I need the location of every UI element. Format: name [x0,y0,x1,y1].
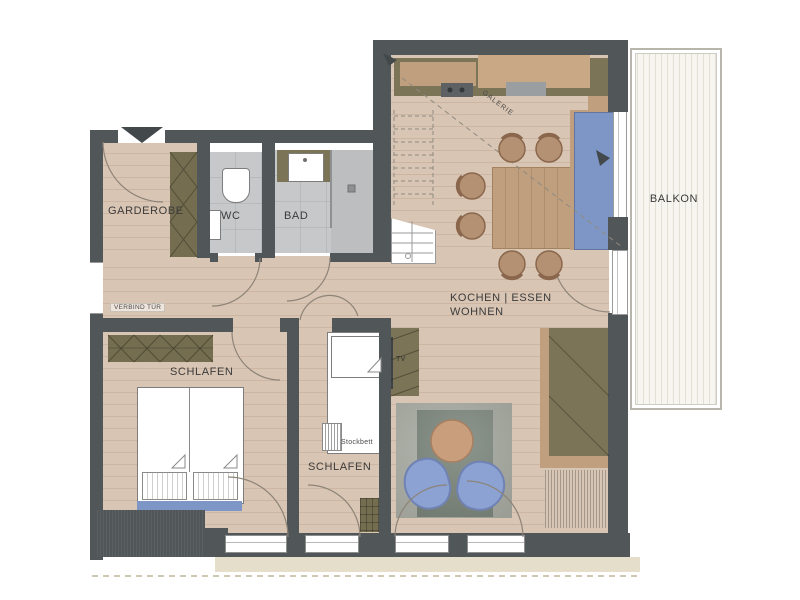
bedroom-main-label: SCHLAFEN [170,366,233,378]
balcony-deck [630,48,722,410]
dining-table [492,167,574,249]
duvet-left [142,472,187,500]
wall-right-lower [608,313,628,557]
cooktop [441,83,473,97]
bad-label: BAD [284,210,308,222]
wall-wc-bad [262,142,275,258]
wall-wc-front-left [210,253,218,262]
wall-wc-front-right [255,253,262,262]
connecting-door-label: VERBIND TÜR [110,303,165,312]
tv-label: TV [396,356,406,363]
wc-label: WC [221,210,241,222]
bunk-pillow [331,336,380,378]
wall-right-pier [608,217,628,250]
living-label-line2: WOHNEN [450,306,504,318]
wall-bad-front [330,253,391,262]
wall-left [90,130,103,560]
garderobe-label: GARDEROBE [108,205,184,217]
terrace-apron [215,557,640,572]
wall-mass-bottom-left [97,510,205,557]
window-living-right [467,535,525,553]
wall-bad-right [373,40,391,262]
wall-bedroom-divider [287,318,299,533]
window-living-left [395,535,449,553]
floor-plan: GARDEROBE WC BAD KOCHEN | ESSEN WOHNEN B… [0,0,800,600]
bunk-ladder [322,423,342,451]
wall-right-upper [608,55,628,112]
living-label-line1: KOCHEN | ESSEN [450,292,552,304]
window-bedroom-kids [305,535,359,553]
wall-bedroom-kids-right [379,318,391,533]
balcony-door [612,250,628,315]
sideboard-mat [545,470,608,528]
wall-bedroom-main-top [103,318,233,332]
sofa-cushion [549,328,610,456]
entrance-opening [118,126,165,143]
wall-kitchen-top [373,40,628,55]
kitchen-sink [506,82,546,96]
bad-sink [288,153,324,182]
bunk-bed-label: Stockbett [341,439,373,446]
balcony-label: BALKON [630,193,718,205]
wall-garderobe-wc [197,142,210,258]
duvet-right [193,472,238,500]
toilet [222,168,250,203]
shower-area [331,150,373,253]
connecting-door-opening [90,262,103,314]
window-bedroom-main [225,535,287,553]
bedroom-main-wardrobe [108,335,213,362]
bedroom-kids-label: SCHLAFEN [308,461,371,473]
